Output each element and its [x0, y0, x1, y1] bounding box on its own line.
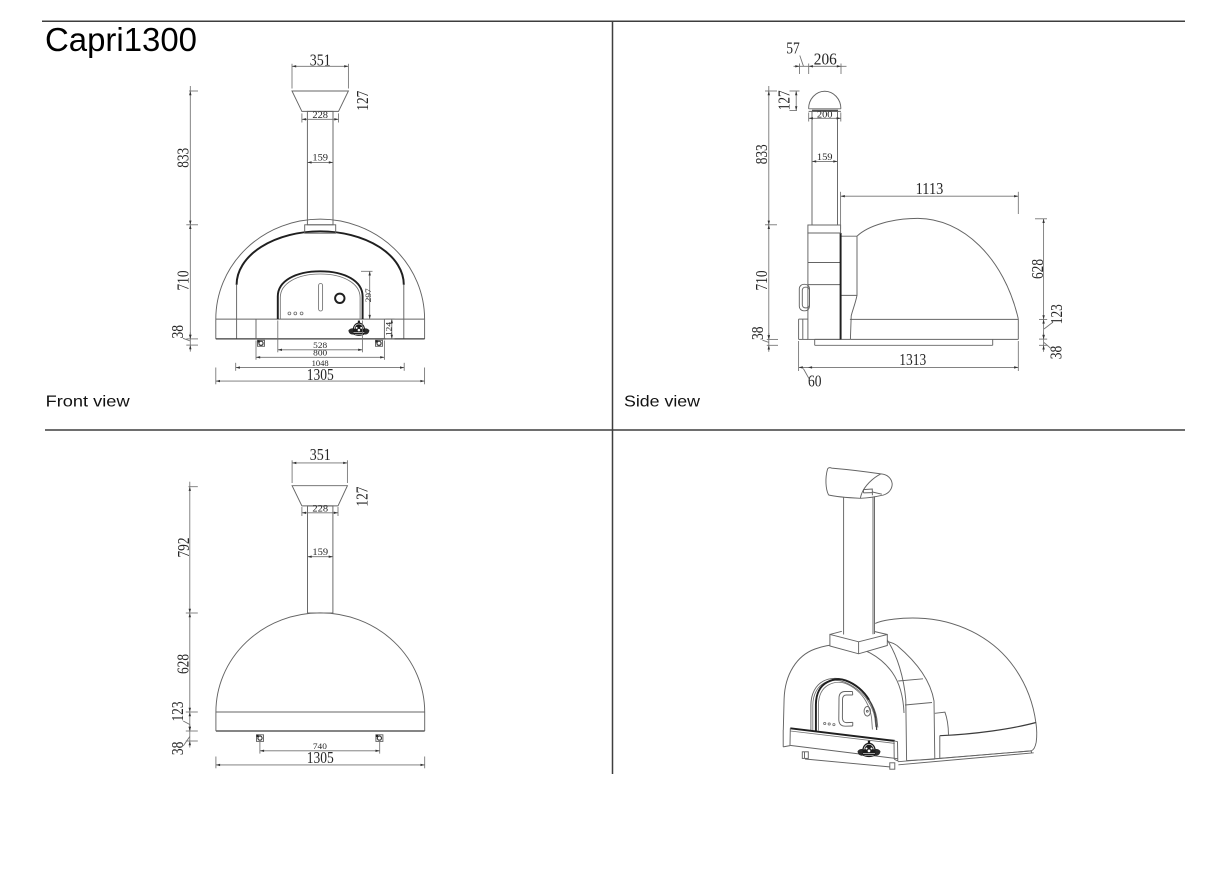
svg-text:60: 60	[808, 371, 822, 390]
svg-text:Capri1300: Capri1300	[45, 21, 197, 58]
svg-text:1305: 1305	[307, 365, 334, 384]
svg-text:710: 710	[173, 271, 192, 291]
svg-text:127: 127	[775, 90, 794, 110]
svg-text:710: 710	[752, 271, 771, 291]
svg-text:628: 628	[173, 654, 192, 674]
svg-text:628: 628	[1028, 259, 1047, 279]
svg-text:351: 351	[310, 50, 331, 69]
svg-text:1305: 1305	[307, 748, 334, 767]
svg-text:38: 38	[168, 742, 187, 756]
svg-text:123: 123	[1047, 304, 1066, 324]
svg-text:38: 38	[748, 326, 767, 340]
svg-text:159: 159	[312, 152, 328, 162]
svg-text:800: 800	[313, 349, 327, 358]
svg-text:127: 127	[353, 90, 372, 110]
svg-text:228: 228	[312, 110, 328, 120]
svg-text:1313: 1313	[899, 350, 926, 369]
svg-text:123: 123	[168, 702, 187, 722]
svg-text:200: 200	[817, 109, 833, 119]
svg-text:833: 833	[752, 144, 771, 164]
svg-text:351: 351	[310, 445, 331, 464]
svg-text:206: 206	[814, 49, 837, 68]
svg-text:297: 297	[364, 288, 373, 302]
svg-text:38: 38	[168, 325, 187, 339]
svg-text:1113: 1113	[916, 179, 944, 198]
svg-text:Front view: Front view	[46, 394, 131, 411]
svg-text:127: 127	[353, 486, 372, 506]
svg-text:38: 38	[1046, 346, 1065, 360]
svg-text:159: 159	[312, 547, 328, 557]
svg-text:57: 57	[786, 38, 800, 57]
svg-text:833: 833	[173, 148, 192, 168]
svg-text:792: 792	[174, 538, 193, 558]
svg-text:159: 159	[817, 152, 833, 162]
svg-text:Side view: Side view	[624, 394, 700, 411]
svg-text:124: 124	[385, 322, 394, 336]
svg-text:228: 228	[312, 503, 328, 513]
